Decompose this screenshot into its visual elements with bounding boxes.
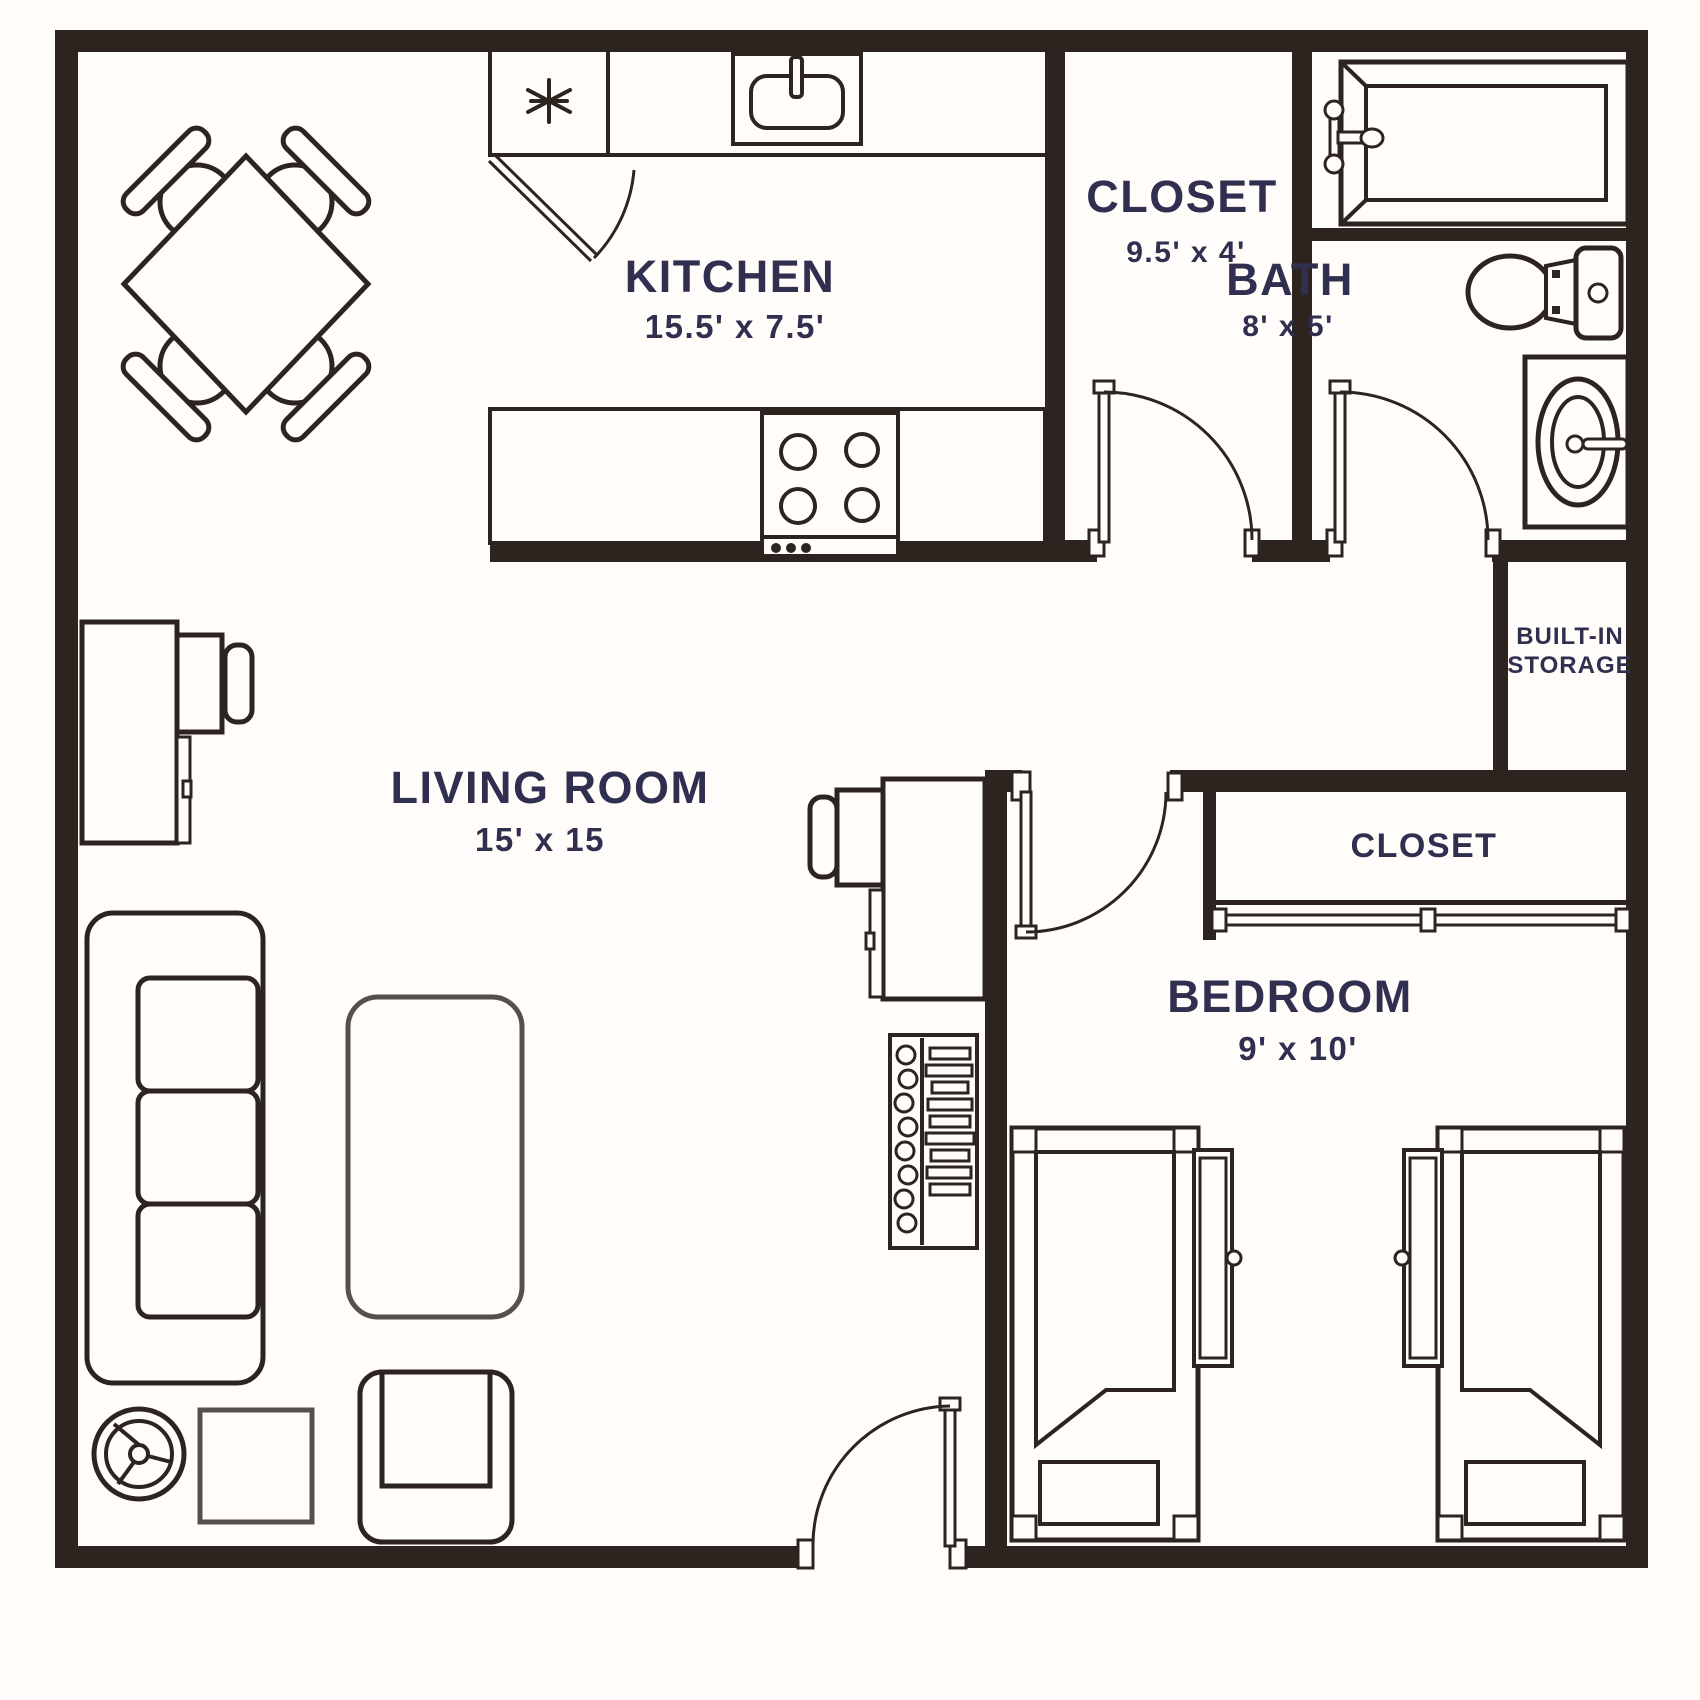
door-swing-arc [1104,392,1252,540]
desk-chair-seat [837,790,883,885]
kitchen-door [489,155,634,261]
door-jamb [798,1540,813,1568]
nightstand-knob [1227,1251,1241,1265]
bath-dims: 8' x 5' [1242,310,1334,343]
wall-kitchen-closet [1045,52,1065,562]
kitchen-fixtures [489,50,1045,556]
entry-door-leaf [945,1406,955,1546]
door-swing-arc [1340,392,1488,540]
desk-knob [866,933,874,949]
wall-hall-b [1252,540,1330,562]
bath-label: BATH [1226,254,1354,305]
burner [781,489,815,523]
armchair-seat [382,1372,490,1486]
desk-knob [183,781,191,797]
stove-knob [801,543,811,553]
wall-right [1626,30,1648,1568]
armchair [360,1372,512,1542]
desk-chair-back [810,797,837,877]
kitchen-label: KITCHEN [625,251,836,302]
floor-plan-canvas: KITCHEN 15.5' x 7.5' CLOSET 9.5' x 4' BA… [0,0,1700,1700]
wall-bottom-left [55,1546,813,1568]
nightstand [1194,1150,1241,1366]
bed-right [1395,1128,1624,1540]
toilet [1468,248,1621,338]
bedroom-door-leaf [1021,792,1031,932]
bedroom-closet-label: CLOSET [1351,827,1498,865]
stove-knob [771,543,781,553]
wall-bottom-right [950,1546,1648,1568]
bedroom-closet-rod [1212,900,1631,931]
storage-label-line1: BUILT-IN [1516,623,1624,650]
wall-middle [985,770,1007,1568]
desk-left [82,622,252,843]
door-swing-arc [1026,792,1166,932]
floor-plan: KITCHEN 15.5' x 7.5' CLOSET 9.5' x 4' BA… [0,0,1700,1700]
dining-set [119,124,374,445]
bathtub-basin [1366,86,1606,200]
burner [781,435,815,469]
burner [846,434,878,466]
door-leaf-cap [940,1398,960,1410]
sofa-cushion [138,1091,258,1204]
wall-top [55,30,1648,52]
round-side-table [94,1409,184,1499]
room-labels: KITCHEN 15.5' x 7.5' CLOSET 9.5' x 4' BA… [391,171,1633,1067]
bath-faucet-handle [1583,439,1627,449]
bath-fixtures [1325,62,1628,527]
wall-hall-c [1492,540,1648,562]
door-jamb [1168,773,1182,800]
burner [846,489,878,521]
wall-closet-bath [1292,52,1312,562]
sofa-cushion [138,978,258,1091]
desk-chair-back [225,645,252,722]
bath-sink-vanity [1525,357,1628,527]
desk-middle [810,779,985,999]
bedroom-dims: 9' x 10' [1238,1030,1357,1067]
closet-top-label: CLOSET [1086,171,1278,222]
kitchen-faucet [791,57,802,97]
wall-storage-left [1493,562,1508,770]
closet-door-leaf [1099,390,1109,542]
storage-label-line2: STORAGE [1507,652,1632,679]
living-room-label: LIVING ROOM [391,762,710,813]
desk-chair-seat [177,635,222,732]
door-swing-arc [594,170,634,258]
stove-knob [786,543,796,553]
wall-tub-ledge [1312,228,1628,241]
nightstand [1395,1150,1442,1366]
pillow [1466,1462,1584,1524]
bedroom-label: BEDROOM [1167,971,1413,1022]
kitchen-dims: 15.5' x 7.5' [645,308,826,345]
living-room-dims: 15' x 15 [475,821,605,858]
wall-bedroom-top-b [1170,770,1648,792]
bath-faucet [1567,436,1583,452]
door-swing-arc [813,1406,950,1543]
living-room-furniture [82,622,985,1542]
wall-left [55,30,78,1568]
bed-left [1012,1128,1241,1540]
bath-door-leaf [1335,390,1345,542]
nightstand-knob [1395,1251,1409,1265]
sofa-cushion [138,1204,258,1317]
bookshelf [890,1035,977,1248]
sofa [87,913,263,1383]
stove [762,413,898,556]
pillow [1040,1462,1158,1524]
coffee-table [348,997,522,1317]
square-side-table [200,1410,312,1522]
